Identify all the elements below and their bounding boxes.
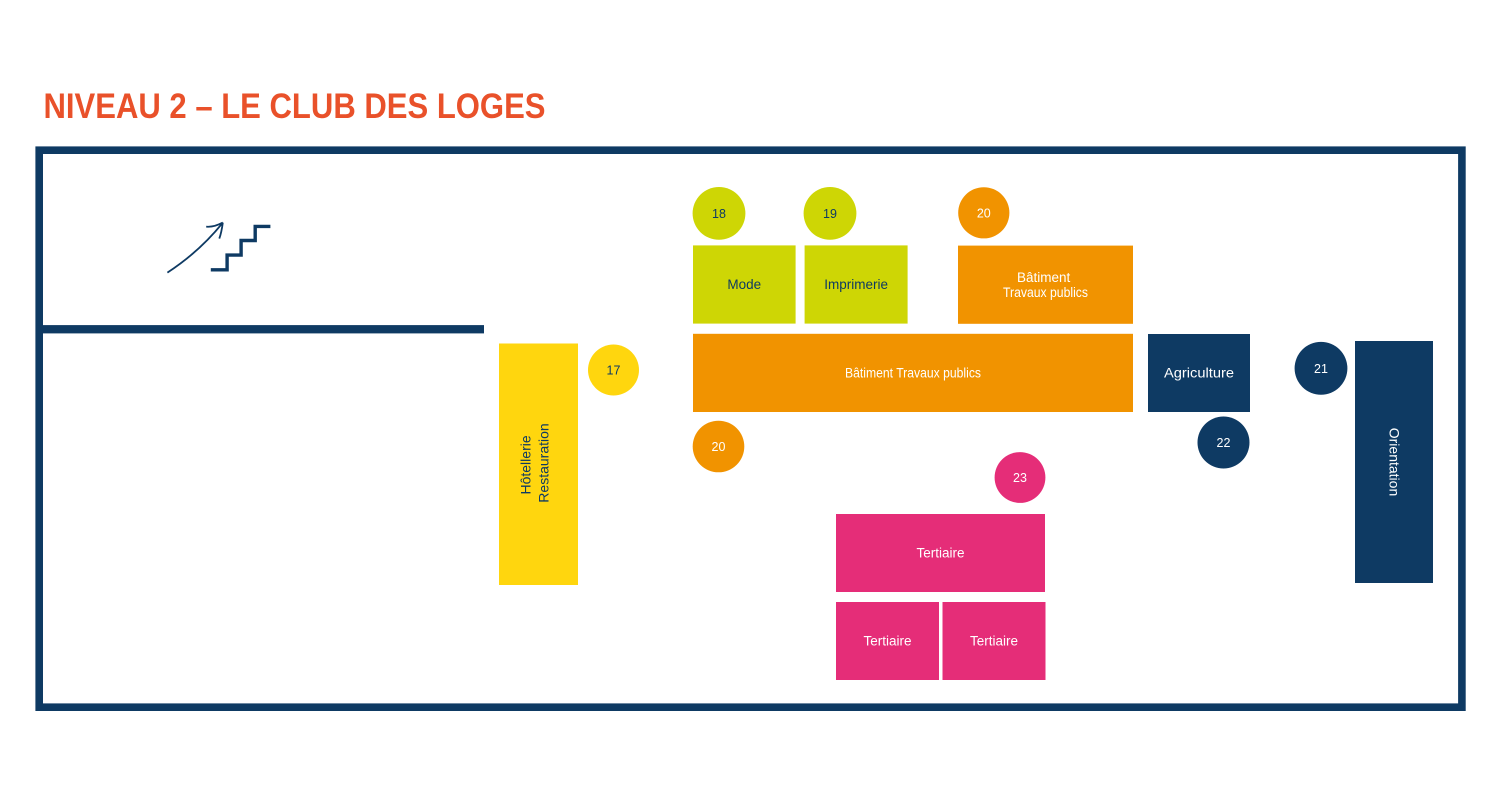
svg-text:20: 20 <box>712 440 726 454</box>
svg-text:18: 18 <box>712 207 726 221</box>
svg-text:Agriculture: Agriculture <box>1164 366 1234 381</box>
svg-text:Orientation: Orientation <box>1387 428 1403 496</box>
svg-text:17: 17 <box>607 364 621 378</box>
svg-text:22: 22 <box>1217 436 1231 450</box>
svg-text:21: 21 <box>1314 362 1328 376</box>
svg-text:Tertiaire: Tertiaire <box>863 634 911 649</box>
svg-text:Bâtiment Travaux publics: Bâtiment Travaux publics <box>845 366 981 381</box>
svg-text:Tertiaire: Tertiaire <box>916 546 964 561</box>
svg-text:20: 20 <box>977 206 991 220</box>
svg-text:Imprimerie: Imprimerie <box>824 277 888 292</box>
svg-text:23: 23 <box>1013 471 1027 485</box>
svg-text:NIVEAU 2 – LE CLUB DES LOGES: NIVEAU 2 – LE CLUB DES LOGES <box>44 86 546 126</box>
svg-text:Mode: Mode <box>727 277 761 292</box>
svg-text:19: 19 <box>823 207 837 221</box>
svg-text:Tertiaire: Tertiaire <box>970 634 1018 649</box>
